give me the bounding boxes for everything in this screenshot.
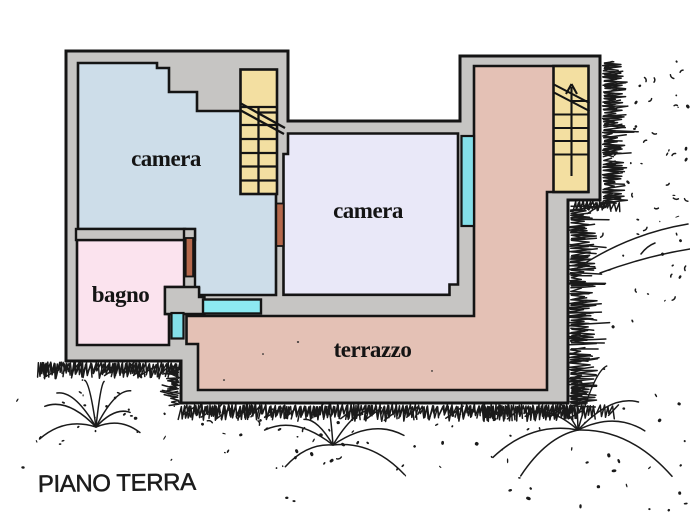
svg-text:camera: camera	[131, 146, 202, 171]
svg-text:terrazzo: terrazzo	[334, 337, 412, 362]
svg-text:bagno: bagno	[92, 282, 150, 307]
svg-text:PIANO TERRA: PIANO TERRA	[38, 469, 197, 498]
svg-text:camera: camera	[333, 198, 404, 223]
